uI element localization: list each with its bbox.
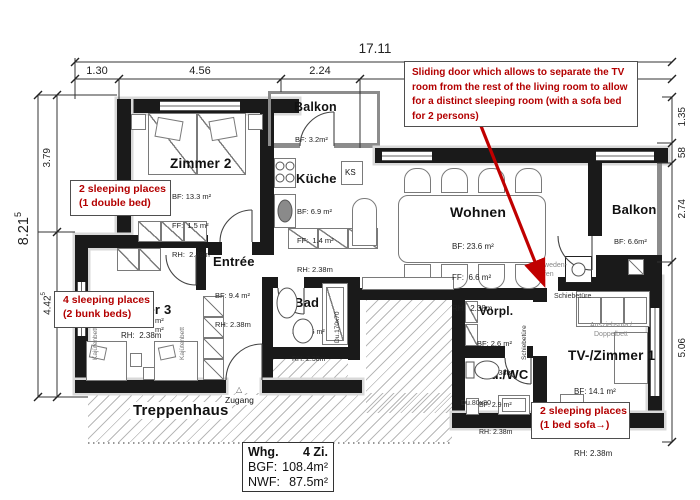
floor-plan: 17.11 1.30 4.56 2.24 8.215 3.79 4.425 1.… (0, 0, 700, 500)
note-line: (1 bed sofa→) (532, 417, 629, 431)
title-block: Whg. 4 Zi. BGF: 108.4m² NWF: 87.5m² (242, 442, 334, 492)
note-sliding-door: Sliding door which allows to separate th… (404, 61, 638, 127)
note-zimmer2-sleeping: 2 sleeping places (1 double bed) (70, 180, 171, 216)
note-line: (2 bunk beds) (55, 306, 153, 320)
note-zimmer3-sleeping: 4 sleeping places (2 bunk beds) (54, 291, 154, 328)
nwf-label: NWF: (248, 475, 280, 490)
apartment-value: 4 Zi. (303, 445, 328, 460)
title-row: Whg. 4 Zi. (248, 445, 328, 460)
title-row: BGF: 108.4m² (248, 460, 328, 475)
note-line: 2 sleeping places (532, 403, 629, 417)
note-tv-sleeping: 2 sleeping places (1 bed sofa→) (531, 402, 630, 439)
title-row: NWF: 87.5m² (248, 475, 328, 490)
nwf-value: 87.5m² (289, 475, 328, 490)
note-line: 4 sleeping places (55, 292, 153, 306)
bgf-label: BGF: (248, 460, 277, 475)
note-line: 2 sleeping places (71, 181, 170, 195)
note-text: Sliding door which allows to separate th… (405, 62, 637, 128)
note-line: (1 double bed) (71, 195, 170, 209)
apartment-label: Whg. (248, 445, 279, 460)
bgf-value: 108.4m² (282, 460, 328, 475)
